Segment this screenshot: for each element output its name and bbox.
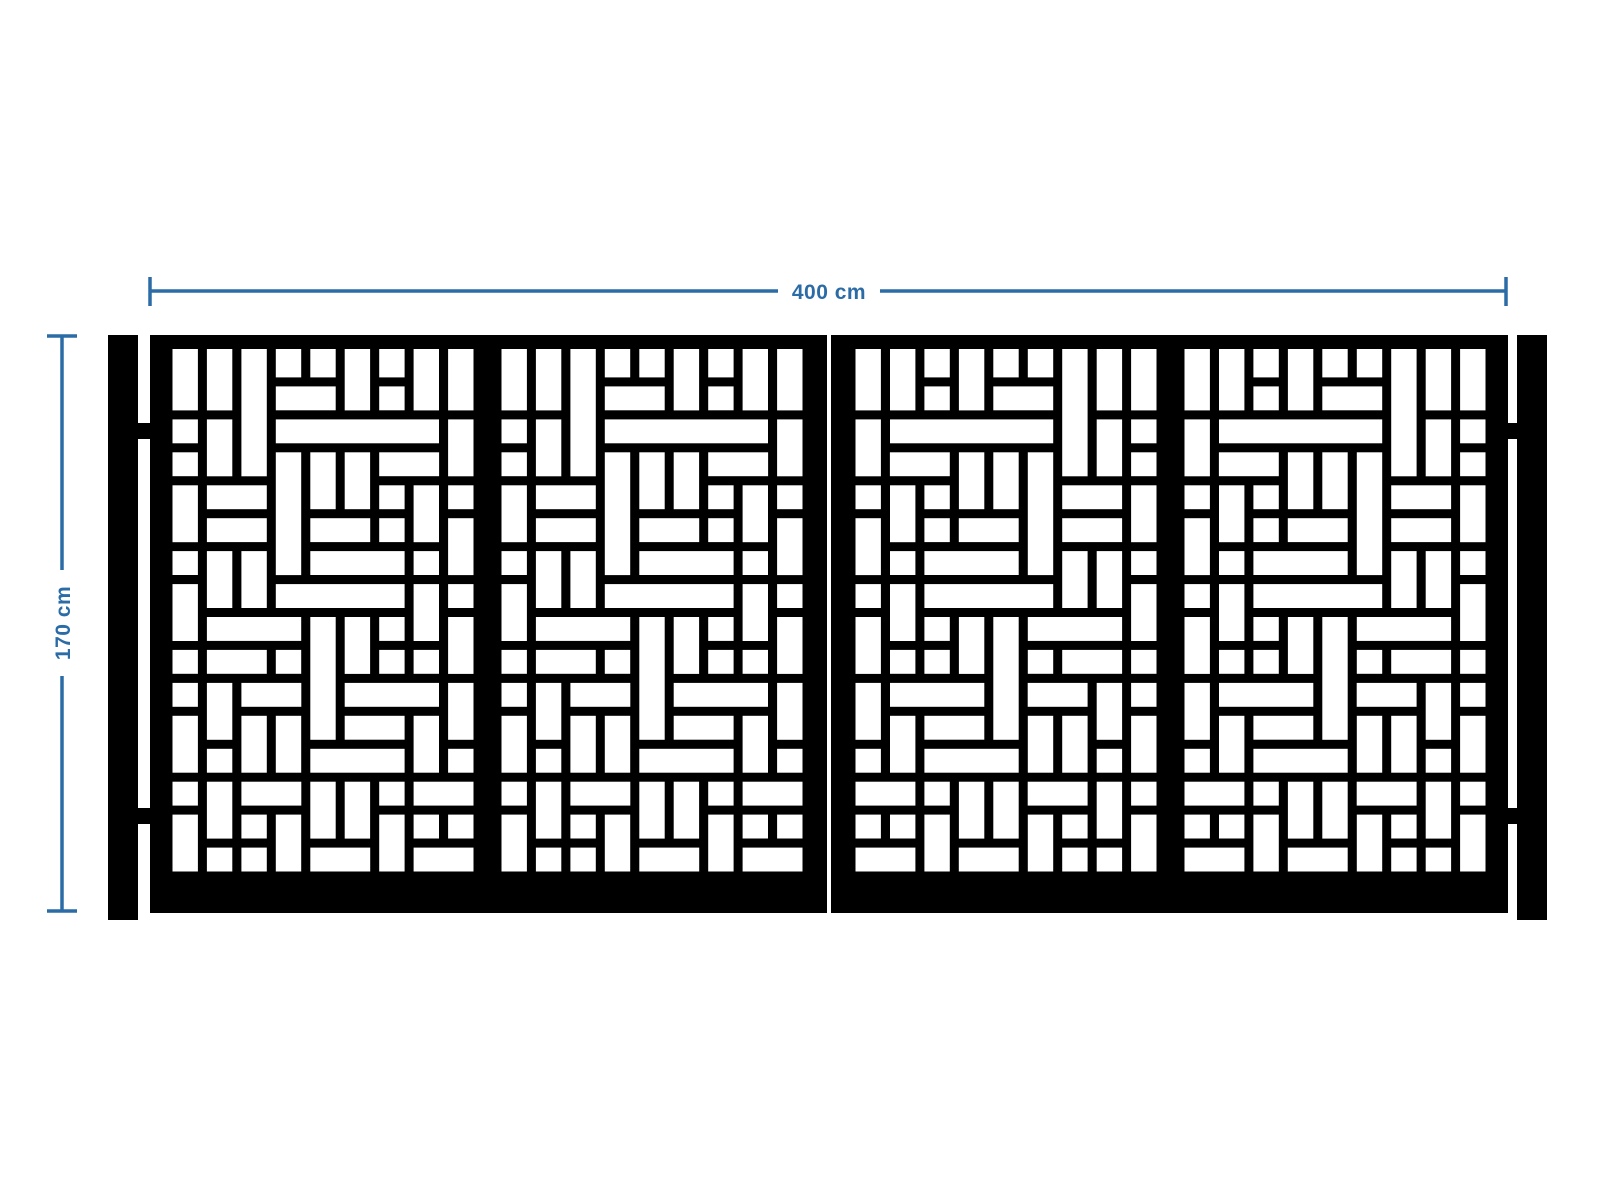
pattern-cutout — [1391, 518, 1451, 542]
pattern-cutout — [1357, 650, 1382, 674]
pattern-cutout — [1391, 716, 1416, 773]
pattern-cutout — [1185, 518, 1210, 575]
pattern-cutout — [1426, 848, 1451, 872]
pattern-cutout — [570, 716, 595, 773]
pattern-cutout — [1322, 782, 1347, 839]
pattern-cutout — [570, 782, 630, 806]
pattern-cutout — [1219, 452, 1279, 476]
pattern-cutout — [173, 716, 198, 773]
pattern-cutout — [448, 518, 473, 575]
pattern-cutout — [536, 782, 561, 839]
pattern-cutout — [310, 551, 404, 575]
pattern-cutout — [1185, 749, 1210, 773]
pattern-cutout — [1460, 452, 1485, 476]
pattern-cutout — [345, 683, 439, 707]
pattern-cutout — [414, 848, 474, 872]
pattern-cutout — [276, 349, 301, 377]
pattern-cutout — [241, 848, 266, 872]
width-dimension: 400 cm — [150, 276, 1506, 306]
pattern-cutout — [502, 551, 527, 575]
pattern-cutout — [959, 349, 984, 410]
pattern-cutout — [890, 650, 915, 674]
pattern-cutout — [207, 617, 301, 641]
pattern-cutout — [959, 617, 984, 674]
pattern-cutout — [207, 551, 232, 608]
pattern-cutout — [1288, 617, 1313, 674]
pattern-cutout — [639, 518, 699, 542]
pattern-cutout — [276, 452, 301, 575]
pattern-cutout — [993, 782, 1018, 839]
pattern-cutout — [502, 683, 527, 707]
pattern-cutout — [1097, 419, 1122, 476]
pattern-cutout — [1426, 782, 1451, 839]
pattern-cutout — [1131, 349, 1156, 410]
pattern-cutout — [1460, 815, 1485, 872]
pattern-cutout — [639, 749, 733, 773]
height-dimension: 170 cm — [47, 336, 77, 911]
pattern-cutout — [605, 452, 630, 575]
pattern-cutout — [1062, 815, 1087, 839]
pattern-cutout — [310, 848, 370, 872]
pattern-cutout — [1426, 349, 1451, 410]
pattern-cutout — [570, 349, 595, 476]
pattern-cutout — [241, 782, 301, 806]
pattern-cutout — [605, 349, 630, 377]
pattern-cutout — [1391, 485, 1451, 509]
pattern-cutout — [1322, 349, 1347, 377]
pattern-cutout — [536, 848, 561, 872]
hinge — [137, 423, 151, 439]
pattern-cutout — [777, 683, 802, 740]
pattern-cutout — [414, 551, 439, 575]
pattern-cutout — [1028, 716, 1053, 773]
pattern-cutout — [310, 782, 335, 839]
pattern-cutout — [890, 584, 915, 641]
pattern-cutout — [1062, 349, 1087, 476]
pattern-cutout — [777, 518, 802, 575]
pattern-cutout — [890, 716, 915, 773]
pattern-cutout — [1219, 716, 1244, 773]
pattern-cutout — [1028, 782, 1088, 806]
pattern-cutout — [1288, 848, 1348, 872]
pattern-cutout — [414, 584, 439, 641]
pattern-cutout — [173, 349, 198, 410]
pattern-cutout — [448, 349, 473, 410]
pattern-cutout — [743, 716, 768, 773]
pattern-cutout — [708, 782, 733, 806]
pattern-cutout — [1185, 419, 1210, 476]
pattern-cutout — [924, 386, 949, 410]
pattern-cutout — [674, 452, 699, 509]
pattern-cutout — [959, 518, 1019, 542]
pattern-cutout — [379, 650, 404, 674]
pattern-cutout — [1253, 584, 1382, 608]
gate-diagram-svg: 400 cm 170 cm — [0, 0, 1600, 1200]
pattern-cutout — [536, 518, 596, 542]
pattern-cutout — [173, 485, 198, 542]
pattern-cutout — [777, 815, 802, 839]
pattern-cutout — [1185, 485, 1210, 509]
pattern-cutout — [993, 452, 1018, 509]
pattern-cutout — [1131, 683, 1156, 707]
pattern-cutout — [207, 650, 267, 674]
pattern-cutout — [924, 518, 949, 542]
pattern-cutout — [674, 617, 699, 674]
pattern-cutout — [1219, 551, 1244, 575]
pattern-cutout — [639, 617, 664, 740]
pattern-cutout — [1460, 683, 1485, 707]
pattern-cutout — [1357, 683, 1417, 707]
pattern-cutout — [890, 452, 950, 476]
pattern-cutout — [1288, 452, 1313, 509]
pattern-cutout — [1097, 782, 1122, 839]
pattern-cutout — [173, 650, 198, 674]
width-dimension-label: 400 cm — [792, 281, 866, 304]
pattern-cutout — [708, 452, 768, 476]
pattern-cutout — [414, 815, 439, 839]
pattern-cutout — [1391, 650, 1451, 674]
pattern-cutout — [502, 716, 527, 773]
pattern-cutout — [414, 716, 439, 773]
pattern-cutout — [502, 650, 527, 674]
pattern-cutout — [924, 349, 949, 377]
pattern-cutout — [1185, 815, 1210, 839]
pattern-cutout — [379, 617, 404, 641]
pattern-cutout — [1322, 386, 1382, 410]
pattern-cutout — [536, 617, 630, 641]
pattern-cutout — [1131, 485, 1156, 542]
pattern-cutout — [1219, 485, 1244, 542]
pattern-cutout — [207, 749, 232, 773]
pattern-cutout — [856, 683, 881, 740]
pattern-cutout — [207, 518, 267, 542]
pattern-cutout — [448, 815, 473, 839]
pattern-cutout — [276, 716, 301, 773]
pattern-cutout — [1097, 551, 1122, 608]
pattern-cutout — [708, 485, 733, 509]
pattern-cutout — [173, 452, 198, 476]
pattern-cutout — [1185, 349, 1210, 410]
pattern-cutout — [1391, 815, 1416, 839]
pattern-cutout — [207, 349, 232, 410]
pattern-cutout — [1219, 419, 1382, 443]
pattern-cutout — [743, 848, 803, 872]
pattern-cutout — [708, 617, 733, 641]
pattern-cutout — [276, 386, 336, 410]
gate-leaf-left — [150, 335, 827, 913]
pattern-cutout — [379, 485, 404, 509]
pattern-cutout — [890, 683, 984, 707]
pattern-cutout — [1097, 749, 1122, 773]
pattern-cutout — [536, 485, 596, 509]
pattern-cutout — [777, 419, 802, 476]
pattern-cutout — [1322, 452, 1347, 509]
pattern-cutout — [605, 419, 768, 443]
pattern-cutout — [502, 419, 527, 443]
pattern-cutout — [993, 386, 1053, 410]
pattern-cutout — [924, 782, 949, 806]
pattern-cutout — [502, 815, 527, 872]
pattern-cutout — [856, 749, 881, 773]
pattern-cutout — [1219, 650, 1244, 674]
pattern-cutout — [345, 349, 370, 410]
pattern-cutout — [1219, 584, 1244, 641]
pattern-cutout — [924, 716, 984, 740]
pattern-cutout — [605, 815, 630, 872]
pattern-cutout — [708, 815, 733, 872]
pattern-cutout — [1131, 782, 1156, 806]
pattern-cutout — [570, 683, 630, 707]
pattern-cutout — [241, 349, 266, 476]
pattern-cutout — [1028, 815, 1053, 872]
pattern-cutout — [1062, 518, 1122, 542]
pattern-cutout — [1288, 349, 1313, 410]
pattern-cutout — [1253, 386, 1278, 410]
pattern-cutout — [1322, 617, 1347, 740]
pattern-cutout — [448, 617, 473, 674]
pattern-cutout — [379, 349, 404, 377]
pattern-cutout — [1357, 452, 1382, 575]
pattern-cutout — [207, 419, 232, 476]
pattern-cutout — [448, 419, 473, 476]
pattern-cutout — [708, 650, 733, 674]
gate-assembly — [108, 335, 1547, 920]
pattern-cutout — [1219, 683, 1313, 707]
pattern-cutout — [1028, 452, 1053, 575]
pattern-cutout — [502, 349, 527, 410]
pattern-cutout — [414, 485, 439, 542]
pattern-cutout — [1253, 551, 1347, 575]
pattern-cutout — [959, 848, 1019, 872]
pattern-cutout — [777, 349, 802, 410]
pattern-cutout — [1062, 650, 1122, 674]
pattern-cutout — [743, 782, 803, 806]
pattern-cutout — [241, 551, 266, 608]
pattern-cutout — [1062, 848, 1087, 872]
pattern-cutout — [1028, 683, 1088, 707]
pattern-cutout — [241, 815, 266, 839]
pattern-cutout — [1253, 485, 1278, 509]
pattern-cutout — [1357, 716, 1382, 773]
pattern-cutout — [1185, 683, 1210, 740]
pattern-cutout — [856, 349, 881, 410]
pattern-cutout — [1219, 815, 1244, 839]
pattern-cutout — [1460, 650, 1485, 674]
pattern-cutout — [1028, 617, 1122, 641]
pattern-cutout — [1253, 716, 1313, 740]
pattern-cutout — [890, 349, 915, 410]
pattern-cutout — [924, 485, 949, 509]
pattern-cutout — [345, 716, 405, 740]
pattern-cutout — [1185, 848, 1245, 872]
pattern-cutout — [856, 419, 881, 476]
pattern-cutout — [1131, 650, 1156, 674]
pattern-cutout — [1357, 617, 1451, 641]
pattern-cutout — [310, 349, 335, 377]
pattern-cutout — [570, 815, 595, 839]
pattern-cutout — [1253, 749, 1347, 773]
pattern-cutout — [414, 349, 439, 410]
pattern-cutout — [1460, 584, 1485, 641]
pattern-cutout — [1460, 782, 1485, 806]
pattern-cutout — [536, 419, 561, 476]
gate-leaf-right — [831, 335, 1508, 913]
pattern-cutout — [743, 485, 768, 542]
pattern-cutout — [639, 848, 699, 872]
pattern-cutout — [856, 782, 916, 806]
pattern-cutout — [708, 518, 733, 542]
pattern-cutout — [1097, 848, 1122, 872]
pattern-cutout — [777, 485, 802, 509]
pattern-cutout — [924, 551, 1018, 575]
pattern-cutout — [502, 584, 527, 641]
pattern-cutout — [310, 518, 370, 542]
pattern-cutout — [674, 782, 699, 839]
pattern-cutout — [345, 782, 370, 839]
pattern-cutout — [1357, 782, 1417, 806]
pattern-cutout — [241, 683, 301, 707]
pattern-cutout — [1357, 349, 1382, 377]
pattern-cutout — [639, 452, 664, 509]
pattern-cutout — [777, 749, 802, 773]
pattern-cutout — [1460, 716, 1485, 773]
pattern-cutout — [1391, 551, 1416, 608]
pattern-cutout — [502, 782, 527, 806]
pattern-cutout — [570, 551, 595, 608]
pattern-cutout — [708, 349, 733, 377]
pattern-cutout — [1391, 848, 1416, 872]
pattern-cutout — [414, 650, 439, 674]
pattern-cutout — [1253, 782, 1278, 806]
pattern-cutout — [345, 617, 370, 674]
pattern-cutout — [743, 584, 768, 641]
pattern-cutout — [890, 485, 915, 542]
pattern-cutout — [570, 848, 595, 872]
pattern-cutout — [1097, 683, 1122, 740]
hinge — [137, 808, 151, 824]
pattern-cutout — [743, 349, 768, 410]
pattern-cutout — [1131, 815, 1156, 872]
pattern-cutout — [856, 485, 881, 509]
pattern-cutout — [448, 485, 473, 509]
pattern-cutout — [173, 584, 198, 641]
pattern-cutout — [448, 683, 473, 740]
pattern-cutout — [605, 386, 665, 410]
pattern-cutout — [536, 551, 561, 608]
pattern-cutout — [1253, 617, 1278, 641]
pattern-cutout — [743, 551, 768, 575]
pattern-cutout — [1062, 716, 1087, 773]
pattern-cutout — [173, 419, 198, 443]
pattern-cutout — [924, 815, 949, 872]
pattern-cutout — [207, 782, 232, 839]
pattern-cutout — [1062, 485, 1122, 509]
pattern-cutout — [207, 683, 232, 740]
pattern-cutout — [639, 349, 664, 377]
pattern-cutout — [890, 419, 1053, 443]
pattern-cutout — [674, 683, 768, 707]
pattern-cutout — [276, 584, 405, 608]
pattern-cutout — [856, 584, 881, 608]
pattern-cutout — [536, 749, 561, 773]
pattern-cutout — [1185, 617, 1210, 674]
pattern-cutout — [1253, 650, 1278, 674]
pattern-cutout — [310, 749, 404, 773]
pattern-cutout — [276, 419, 439, 443]
pattern-cutout — [414, 782, 474, 806]
pattern-cutout — [856, 848, 916, 872]
pattern-cutout — [1426, 749, 1451, 773]
pattern-cutout — [1185, 584, 1210, 608]
pattern-cutout — [1253, 518, 1278, 542]
pattern-cutout — [241, 716, 266, 773]
pattern-cutout — [1426, 551, 1451, 608]
pattern-cutout — [207, 848, 232, 872]
pattern-cutout — [924, 584, 1053, 608]
pattern-cutout — [379, 815, 404, 872]
pattern-cutout — [310, 452, 335, 509]
pattern-cutout — [777, 617, 802, 674]
pattern-cutout — [310, 617, 335, 740]
pattern-cutout — [708, 386, 733, 410]
pattern-cutout — [536, 349, 561, 410]
pattern-cutout — [173, 551, 198, 575]
pattern-cutout — [1028, 650, 1053, 674]
pattern-cutout — [1426, 683, 1451, 740]
pattern-cutout — [1460, 551, 1485, 575]
pattern-cutout — [502, 452, 527, 476]
pattern-cutout — [1131, 584, 1156, 641]
hinge — [1507, 423, 1518, 439]
pattern-cutout — [1131, 716, 1156, 773]
pattern-cutout — [639, 551, 733, 575]
pattern-cutout — [173, 815, 198, 872]
pattern-cutout — [379, 386, 404, 410]
pattern-cutout — [959, 452, 984, 509]
pattern-cutout — [674, 716, 734, 740]
pattern-cutout — [1253, 815, 1278, 872]
left-post — [108, 335, 138, 920]
pattern-cutout — [379, 518, 404, 542]
pattern-cutout — [448, 584, 473, 608]
pattern-cutout — [777, 584, 802, 608]
pattern-cutout — [1460, 419, 1485, 443]
pattern-cutout — [536, 683, 561, 740]
pattern-cutout — [993, 617, 1018, 740]
pattern-cutout — [207, 485, 267, 509]
pattern-cutout — [924, 749, 1018, 773]
pattern-cutout — [605, 584, 734, 608]
pattern-cutout — [674, 349, 699, 410]
pattern-cutout — [1357, 815, 1382, 872]
pattern-cutout — [639, 782, 664, 839]
pattern-cutout — [276, 815, 301, 872]
pattern-cutout — [173, 683, 198, 707]
height-dimension-label: 170 cm — [52, 586, 75, 660]
pattern-cutout — [1253, 349, 1278, 377]
pattern-cutout — [743, 650, 768, 674]
pattern-cutout — [1288, 518, 1348, 542]
pattern-cutout — [1131, 419, 1156, 443]
pattern-cutout — [1131, 551, 1156, 575]
pattern-cutout — [924, 617, 949, 641]
pattern-cutout — [345, 452, 370, 509]
pattern-cutout — [890, 551, 915, 575]
pattern-cutout — [993, 349, 1018, 377]
pattern-cutout — [743, 815, 768, 839]
pattern-cutout — [379, 452, 439, 476]
pattern-cutout — [1426, 419, 1451, 476]
